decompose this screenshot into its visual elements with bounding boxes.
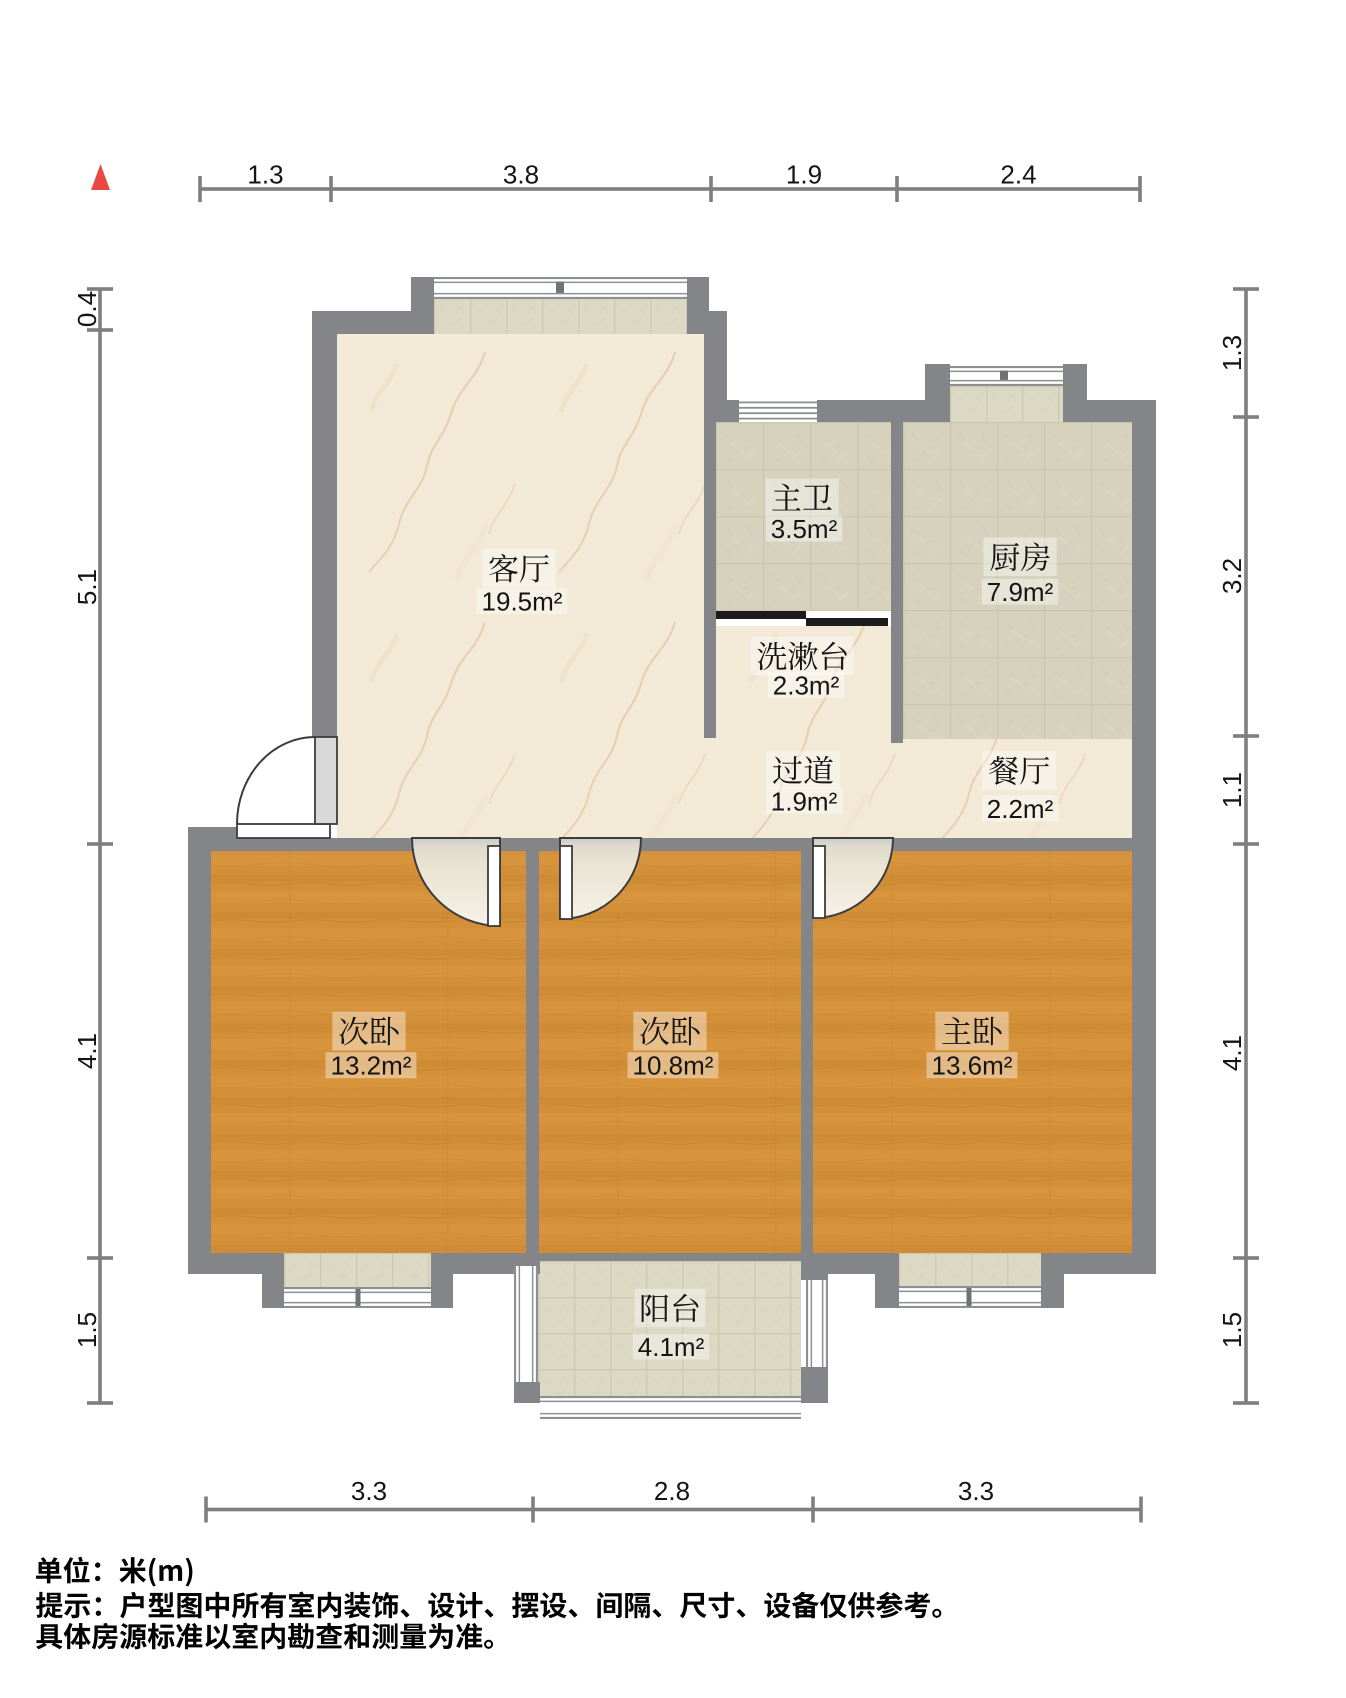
svg-text:4.1: 4.1	[1217, 1035, 1247, 1071]
svg-text:3.3: 3.3	[958, 1476, 994, 1506]
svg-text:4.1m²: 4.1m²	[638, 1332, 705, 1362]
svg-text:2.8: 2.8	[654, 1476, 690, 1506]
svg-text:5.1: 5.1	[72, 569, 102, 605]
svg-text:1.1: 1.1	[1217, 772, 1247, 808]
svg-text:3.2: 3.2	[1217, 558, 1247, 594]
svg-text:3.8: 3.8	[503, 160, 539, 190]
svg-text:0.4: 0.4	[72, 291, 102, 327]
svg-text:13.6m²: 13.6m²	[932, 1051, 1013, 1081]
svg-text:1.9: 1.9	[786, 160, 822, 190]
svg-text:3.3: 3.3	[351, 1476, 387, 1506]
svg-text:19.5m²: 19.5m²	[482, 587, 563, 617]
svg-text:1.5: 1.5	[1217, 1312, 1247, 1348]
svg-text:3.5m²: 3.5m²	[771, 514, 838, 544]
svg-text:4.1: 4.1	[72, 1033, 102, 1069]
svg-text:7.9m²: 7.9m²	[987, 577, 1054, 607]
svg-text:1.3: 1.3	[1217, 335, 1247, 371]
svg-text:1.3: 1.3	[247, 160, 283, 190]
svg-text:1.9m²: 1.9m²	[771, 786, 838, 816]
svg-text:1.5: 1.5	[72, 1312, 102, 1348]
svg-text:2.3m²: 2.3m²	[773, 671, 840, 701]
svg-text:2.4: 2.4	[1000, 160, 1036, 190]
svg-text:10.8m²: 10.8m²	[633, 1051, 714, 1081]
svg-text:13.2m²: 13.2m²	[331, 1051, 412, 1081]
svg-text:2.2m²: 2.2m²	[987, 794, 1054, 824]
